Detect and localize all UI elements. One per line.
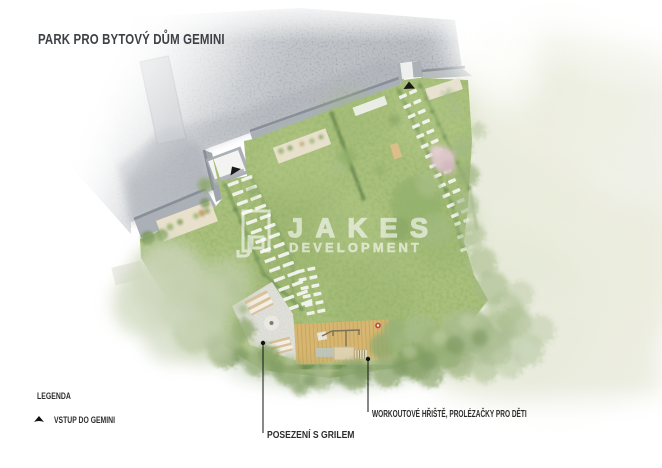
svg-text:DEVELOPMENT: DEVELOPMENT — [289, 240, 422, 255]
svg-text:WORKOUTOVÉ HŘIŠTĚ, PROLÉZAČKY: WORKOUTOVÉ HŘIŠTĚ, PROLÉZAČKY PRO DĚTI — [372, 406, 527, 419]
svg-text:PARK PRO BYTOVÝ DŮM GEMINI: PARK PRO BYTOVÝ DŮM GEMINI — [38, 30, 225, 48]
svg-text:VSTUP DO GEMINI: VSTUP DO GEMINI — [54, 415, 115, 425]
svg-text:POSEZENÍ S GRILEM: POSEZENÍ S GRILEM — [267, 428, 354, 441]
svg-text:LEGENDA: LEGENDA — [37, 390, 71, 401]
svg-text:JAKES: JAKES — [288, 213, 441, 243]
